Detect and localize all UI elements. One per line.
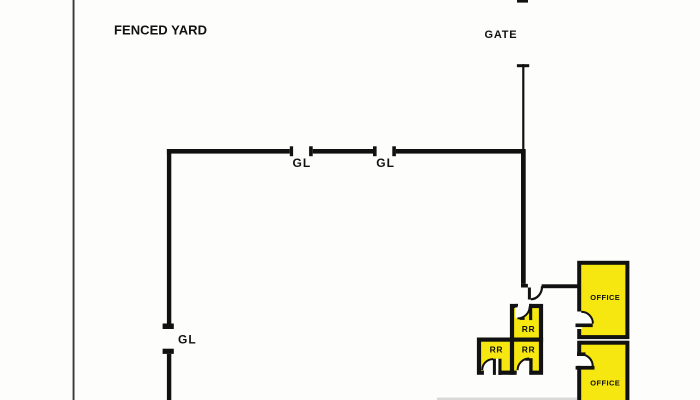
svg-text:RR: RR [522, 324, 536, 334]
svg-text:GATE: GATE [485, 29, 518, 41]
svg-text:FENCED YARD: FENCED YARD [114, 23, 207, 38]
svg-text:GL: GL [178, 333, 197, 347]
svg-text:GL: GL [293, 156, 312, 170]
svg-text:OFFICE: OFFICE [590, 293, 620, 302]
svg-text:RR: RR [490, 344, 504, 354]
svg-text:OFFICE: OFFICE [590, 378, 620, 387]
svg-text:GL: GL [376, 156, 395, 170]
svg-text:RR: RR [522, 344, 536, 354]
